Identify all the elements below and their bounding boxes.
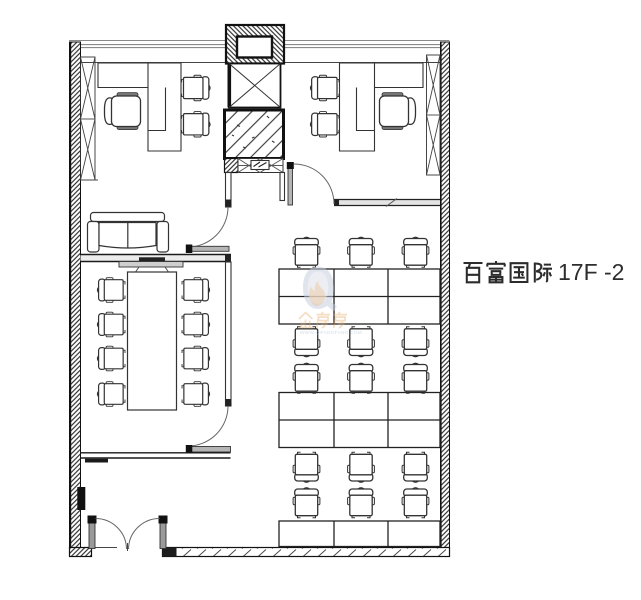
svg-text:WWW.QIFANGFANG.COM: WWW.QIFANGFANG.COM <box>300 330 362 336</box>
svg-text:17F -2: 17F -2 <box>558 259 624 285</box>
